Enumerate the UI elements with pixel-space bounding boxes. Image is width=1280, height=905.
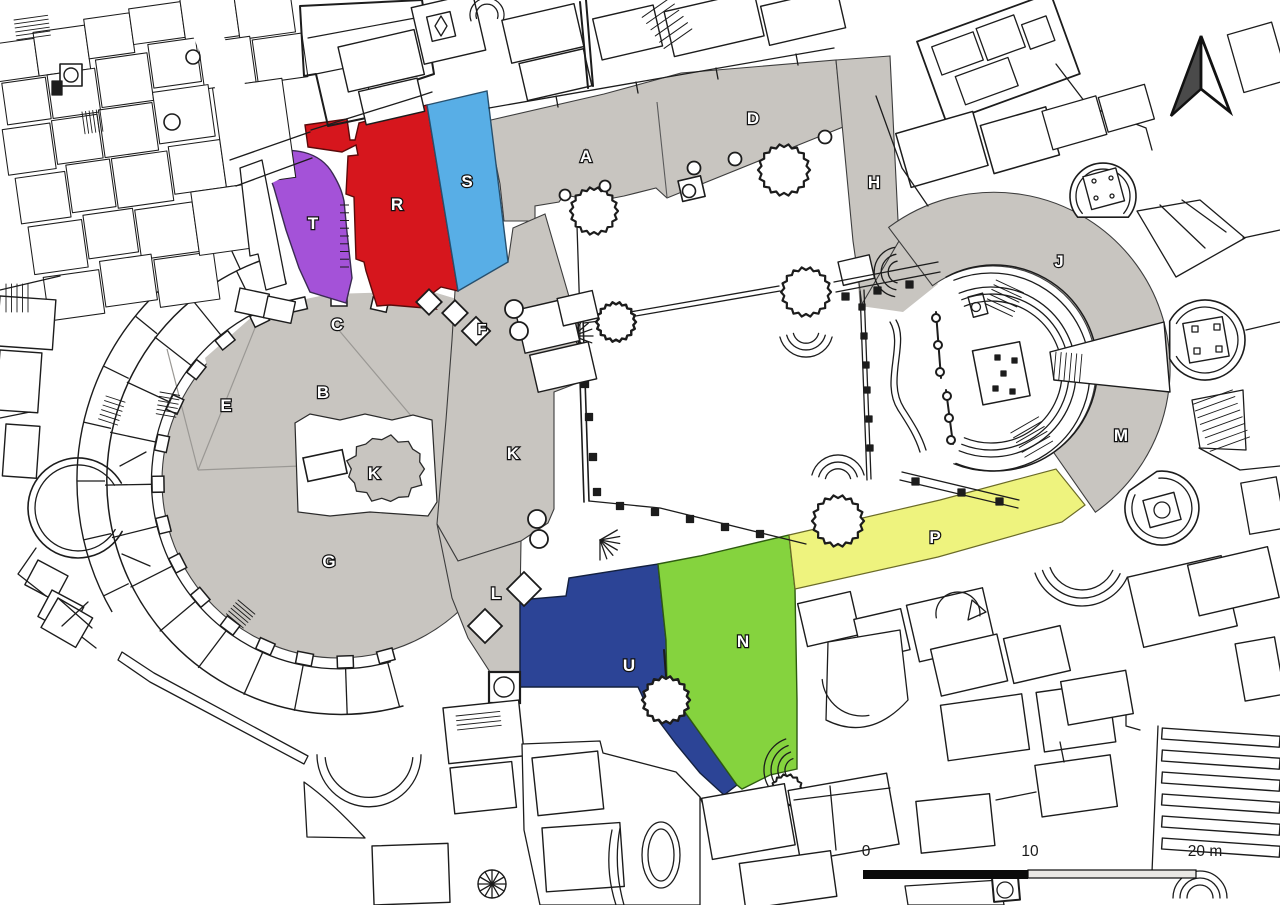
svg-text:F: F (477, 321, 486, 338)
svg-text:B: B (317, 383, 329, 402)
svg-text:D: D (747, 109, 759, 128)
svg-text:S: S (461, 172, 472, 191)
svg-text:P: P (929, 528, 940, 547)
svg-text:E: E (220, 396, 231, 415)
svg-text:C: C (331, 315, 343, 334)
svg-text:U: U (623, 656, 635, 675)
svg-text:T: T (308, 214, 319, 233)
svg-text:0: 0 (862, 843, 871, 860)
svg-text:R: R (391, 195, 403, 214)
svg-text:N: N (737, 632, 749, 651)
svg-text:A: A (580, 147, 592, 166)
svg-text:L: L (491, 584, 501, 603)
svg-text:K: K (507, 444, 520, 463)
svg-text:20 m: 20 m (1188, 843, 1222, 860)
svg-text:G: G (322, 552, 335, 571)
svg-text:M: M (1114, 426, 1128, 445)
svg-text:K: K (368, 464, 381, 483)
svg-text:H: H (868, 173, 880, 192)
svg-text:10: 10 (1021, 843, 1039, 860)
svg-text:J: J (1054, 252, 1063, 271)
